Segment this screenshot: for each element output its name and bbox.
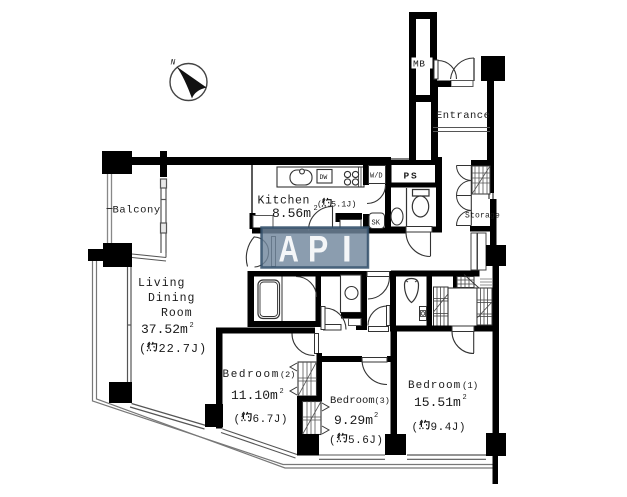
svg-text:9.29m: 9.29m bbox=[334, 413, 373, 428]
svg-text:(: ( bbox=[412, 422, 419, 434]
svg-text:5.6J): 5.6J) bbox=[348, 435, 384, 447]
svg-text:(3): (3) bbox=[375, 396, 390, 406]
svg-text:P: P bbox=[308, 229, 328, 271]
svg-text:I: I bbox=[342, 228, 352, 270]
svg-text:(: ( bbox=[329, 435, 336, 447]
svg-text:2: 2 bbox=[374, 412, 378, 420]
svg-text:9.4J): 9.4J) bbox=[431, 422, 467, 434]
svg-text:(2): (2) bbox=[280, 370, 295, 380]
svg-text:2: 2 bbox=[463, 394, 467, 402]
svg-text:(1): (1) bbox=[462, 381, 478, 391]
svg-text:Storage: Storage bbox=[465, 212, 500, 221]
svg-text:(: ( bbox=[234, 414, 241, 426]
svg-text:Bedroom: Bedroom bbox=[408, 380, 461, 392]
svg-text:(: ( bbox=[139, 342, 146, 356]
svg-text:MB: MB bbox=[413, 59, 425, 70]
svg-text:15.51m: 15.51m bbox=[414, 395, 461, 410]
svg-text:6.7J): 6.7J) bbox=[253, 414, 289, 426]
svg-text:A: A bbox=[279, 228, 299, 270]
svg-text:11.10m: 11.10m bbox=[231, 388, 278, 403]
svg-text:Bedroom: Bedroom bbox=[330, 395, 375, 407]
svg-text:SK: SK bbox=[372, 220, 381, 228]
svg-text:DW: DW bbox=[320, 174, 328, 181]
svg-text:W/D: W/D bbox=[370, 173, 383, 181]
svg-text:PS: PS bbox=[404, 171, 419, 182]
svg-text:Dining: Dining bbox=[148, 292, 195, 305]
svg-text:37.52m: 37.52m bbox=[141, 322, 188, 337]
svg-text:Entrance: Entrance bbox=[436, 110, 490, 122]
svg-text:5.1J): 5.1J) bbox=[331, 200, 357, 210]
svg-text:8.56m: 8.56m bbox=[272, 206, 311, 221]
svg-text:Living: Living bbox=[138, 277, 185, 290]
svg-text:Balcony: Balcony bbox=[113, 205, 161, 217]
svg-text:Room: Room bbox=[161, 307, 193, 320]
svg-text:(: ( bbox=[317, 200, 322, 210]
svg-text:Bedroom: Bedroom bbox=[223, 369, 280, 381]
svg-text:22.7J): 22.7J) bbox=[159, 342, 208, 356]
svg-text:2: 2 bbox=[190, 322, 194, 330]
svg-text:N: N bbox=[171, 59, 176, 68]
svg-text:2: 2 bbox=[280, 388, 284, 396]
